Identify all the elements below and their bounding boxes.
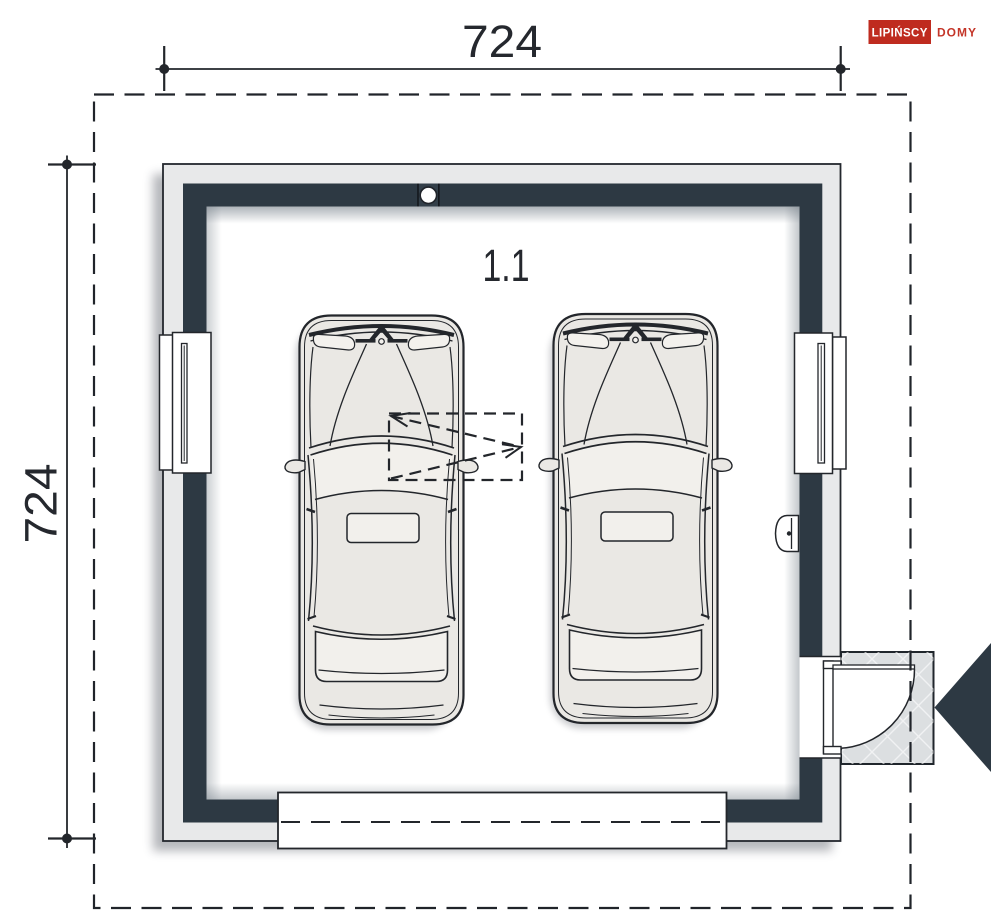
svg-text:724: 724 <box>462 16 542 67</box>
svg-text:DOMY: DOMY <box>937 26 977 40</box>
svg-text:724: 724 <box>16 464 67 544</box>
svg-text:LIPIŃSCY: LIPIŃSCY <box>872 27 928 40</box>
svg-text:1.1: 1.1 <box>483 240 530 291</box>
